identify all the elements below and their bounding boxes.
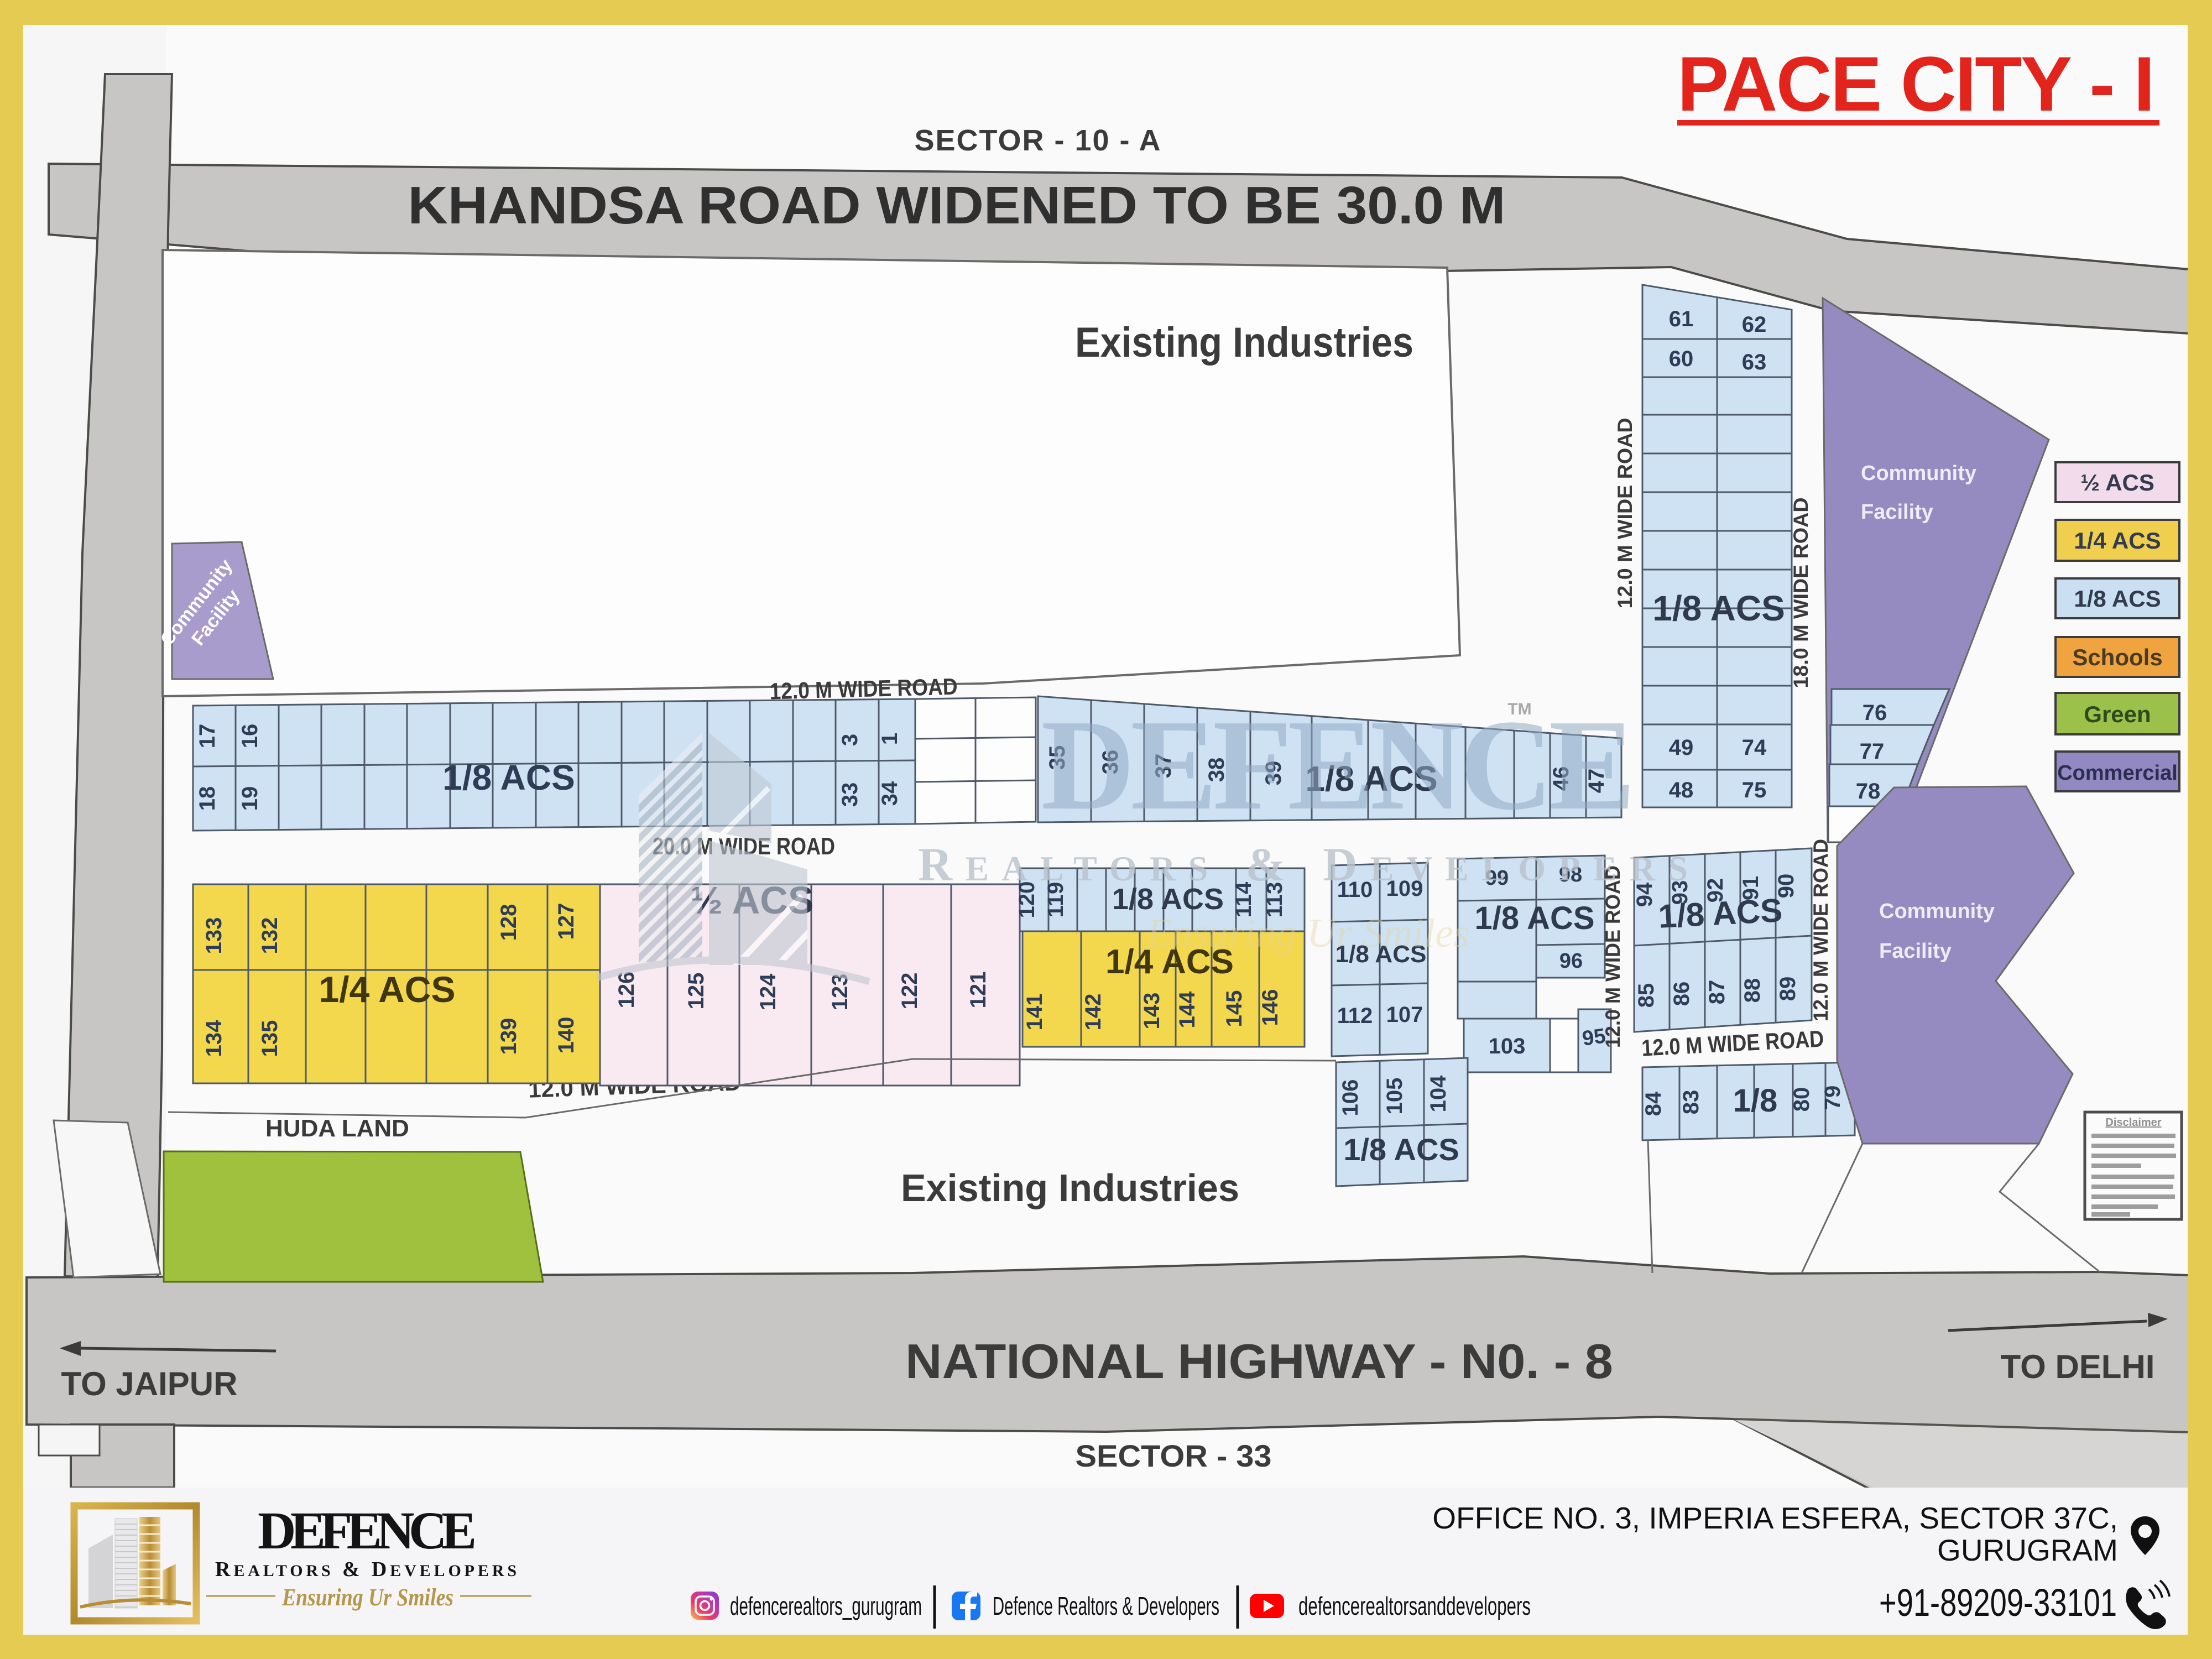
svg-text:107: 107 xyxy=(1386,1003,1423,1027)
svg-text:141: 141 xyxy=(1022,994,1047,1031)
svg-text:103: 103 xyxy=(1489,1034,1526,1058)
svg-text:18: 18 xyxy=(195,786,220,811)
svg-text:1/8 ACS: 1/8 ACS xyxy=(442,758,575,797)
svg-text:Community: Community xyxy=(1861,462,1976,485)
svg-text:Existing Industries: Existing Industries xyxy=(1075,319,1413,366)
svg-text:34: 34 xyxy=(878,781,902,806)
svg-text:105: 105 xyxy=(1383,1078,1407,1115)
svg-text:12.0 M WIDE ROAD: 12.0 M WIDE ROAD xyxy=(769,674,958,705)
svg-text:128: 128 xyxy=(497,904,521,941)
svg-text:49: 49 xyxy=(1669,735,1694,760)
svg-text:OFFICE NO. 3, IMPERIA ESFERA,: OFFICE NO. 3, IMPERIA ESFERA, SECTOR 37C… xyxy=(1432,1501,2118,1535)
svg-text:SECTOR - 33: SECTOR - 33 xyxy=(1076,1438,1272,1473)
svg-text:½ ACS: ½ ACS xyxy=(2080,469,2154,495)
svg-text:Commercial: Commercial xyxy=(2057,761,2178,785)
svg-text:Green: Green xyxy=(2084,701,2151,727)
svg-text:1: 1 xyxy=(878,733,902,745)
svg-text:104: 104 xyxy=(1426,1075,1451,1112)
svg-text:defencerealtors_gurugram: defencerealtors_gurugram xyxy=(730,1592,922,1620)
svg-text:89: 89 xyxy=(1776,977,1800,1001)
svg-text:121: 121 xyxy=(966,972,990,1009)
svg-text:84: 84 xyxy=(1641,1091,1666,1116)
svg-text:1/8 ACS: 1/8 ACS xyxy=(1652,588,1785,628)
svg-text:12.0 M WIDE ROAD: 12.0 M WIDE ROAD xyxy=(1809,839,1832,1021)
svg-text:TO JAIPUR: TO JAIPUR xyxy=(61,1365,238,1402)
svg-text:139: 139 xyxy=(497,1018,521,1055)
svg-text:78: 78 xyxy=(1856,779,1881,804)
svg-text:61: 61 xyxy=(1669,307,1694,331)
svg-text:17: 17 xyxy=(195,724,220,749)
svg-text:12.0 M WIDE ROAD: 12.0 M WIDE ROAD xyxy=(1601,865,1624,1048)
svg-text:1/4 ACS: 1/4 ACS xyxy=(319,969,456,1010)
svg-text:Existing Industries: Existing Industries xyxy=(901,1166,1239,1209)
svg-text:77: 77 xyxy=(1860,739,1885,764)
svg-text:146: 146 xyxy=(1258,989,1282,1026)
svg-text:145: 145 xyxy=(1222,990,1246,1027)
svg-text:134: 134 xyxy=(202,1020,226,1057)
svg-text:96: 96 xyxy=(1559,950,1583,973)
svg-text:1/8: 1/8 xyxy=(1733,1083,1778,1119)
svg-text:Disclaimer: Disclaimer xyxy=(2105,1117,2161,1129)
svg-text:DEFENCE: DEFENCE xyxy=(1041,693,1641,837)
svg-text:48: 48 xyxy=(1669,778,1694,802)
svg-text:132: 132 xyxy=(258,917,282,954)
svg-text:Facility: Facility xyxy=(1879,940,1952,963)
svg-text:SECTOR - 10 - A: SECTOR - 10 - A xyxy=(914,124,1161,157)
svg-text:HUDA LAND: HUDA LAND xyxy=(265,1115,409,1142)
svg-text:87: 87 xyxy=(1705,980,1729,1005)
svg-text:76: 76 xyxy=(1863,701,1887,725)
svg-text:127: 127 xyxy=(554,903,578,940)
svg-text:1/4 ACS: 1/4 ACS xyxy=(2074,528,2161,554)
svg-text:80: 80 xyxy=(1790,1087,1814,1112)
svg-text:+91-89209-33101: +91-89209-33101 xyxy=(1879,1581,2117,1624)
svg-text:106: 106 xyxy=(1338,1079,1363,1117)
svg-text:75: 75 xyxy=(1742,778,1767,802)
svg-text:defencerealtorsanddevelopers: defencerealtorsanddevelopers xyxy=(1298,1592,1531,1620)
svg-text:1/8 ACS: 1/8 ACS xyxy=(1474,900,1594,936)
svg-text:133: 133 xyxy=(202,917,226,954)
svg-text:1/8 ACS: 1/8 ACS xyxy=(2074,586,2161,612)
svg-text:142: 142 xyxy=(1081,994,1105,1031)
svg-text:83: 83 xyxy=(1679,1090,1703,1115)
svg-text:18.0 M WIDE ROAD: 18.0 M WIDE ROAD xyxy=(1790,498,1812,688)
svg-text:Schools: Schools xyxy=(2072,644,2162,670)
svg-text:Community: Community xyxy=(1879,900,1995,923)
svg-text:60: 60 xyxy=(1669,347,1694,371)
svg-text:KHANDSA ROAD WIDENED TO BE 30.: KHANDSA ROAD WIDENED TO BE 30.0 M xyxy=(408,176,1506,235)
svg-text:DEFENCE: DEFENCE xyxy=(258,1501,479,1560)
svg-text:125: 125 xyxy=(684,973,708,1010)
svg-text:1/8 ACS: 1/8 ACS xyxy=(1343,1132,1459,1167)
svg-text:126: 126 xyxy=(614,972,639,1009)
svg-text:GURUGRAM: GURUGRAM xyxy=(1937,1533,2118,1567)
svg-text:88: 88 xyxy=(1740,978,1765,1003)
svg-text:143: 143 xyxy=(1140,993,1164,1030)
svg-text:16: 16 xyxy=(238,724,262,749)
svg-text:135: 135 xyxy=(258,1020,282,1057)
svg-text:Ensuring Ur Smiles: Ensuring Ur Smiles xyxy=(281,1584,453,1611)
svg-text:1/8 ACS: 1/8 ACS xyxy=(1657,891,1783,935)
svg-text:79: 79 xyxy=(1820,1086,1845,1110)
svg-text:62: 62 xyxy=(1742,312,1767,337)
svg-text:112: 112 xyxy=(1337,1004,1373,1028)
svg-text:REALTORS & DEVELOPERS: REALTORS & DEVELOPERS xyxy=(215,1558,520,1581)
svg-text:PACE CITY - I: PACE CITY - I xyxy=(1677,40,2158,127)
svg-text:Ensuring Ur Smiles: Ensuring Ur Smiles xyxy=(1146,911,1469,956)
svg-text:Facility: Facility xyxy=(1861,500,1933,524)
svg-text:33: 33 xyxy=(838,782,862,807)
svg-text:122: 122 xyxy=(898,973,922,1010)
svg-text:3: 3 xyxy=(838,734,862,746)
svg-text:74: 74 xyxy=(1742,735,1767,760)
svg-text:140: 140 xyxy=(554,1017,578,1054)
svg-text:19: 19 xyxy=(238,786,262,811)
svg-text:124: 124 xyxy=(756,973,780,1010)
svg-text:Defence Realtors & Developers: Defence Realtors & Developers xyxy=(993,1592,1219,1620)
svg-text:TO DELHI: TO DELHI xyxy=(2001,1348,2155,1385)
svg-text:12.0 M WIDE ROAD: 12.0 M WIDE ROAD xyxy=(1614,418,1636,609)
svg-text:NATIONAL HIGHWAY - N0. - 8: NATIONAL HIGHWAY - N0. - 8 xyxy=(905,1334,1613,1389)
svg-text:144: 144 xyxy=(1175,991,1199,1028)
svg-text:63: 63 xyxy=(1742,350,1767,374)
svg-text:85: 85 xyxy=(1634,983,1658,1008)
svg-text:86: 86 xyxy=(1670,982,1694,1006)
